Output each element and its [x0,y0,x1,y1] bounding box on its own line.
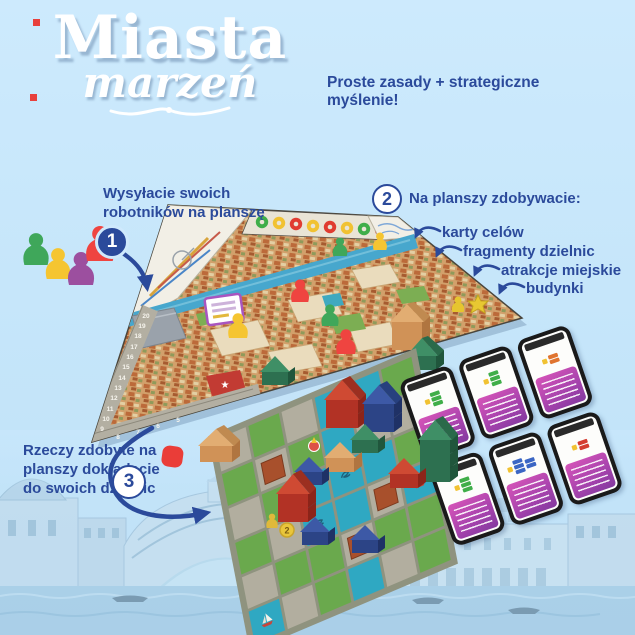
arrow-bullet-karty [416,228,440,236]
step1-label: Wysyłacie swoich robotników na planszę [103,184,293,222]
step3-badge: 3 [112,465,146,499]
arrow-bullet-budynki [500,284,524,292]
arrow-step1 [124,254,147,287]
bullet-atrakcje-miejskie: atrakcje miejskie [501,262,621,279]
step2-row: 2 Na planszy zdobywacie: [372,184,581,214]
red-confetti-square [30,94,37,101]
arrow-bullet-fragmenty [437,247,461,255]
step2-label: Na planszy zdobywacie: [409,189,581,208]
bullet-budynki: budynki [526,280,584,297]
step1-badge: 1 [95,225,129,259]
game-title: Miasta marzeń [30,8,310,118]
bullet-fragmenty-dzielnic: fragmenty dzielnic [463,243,595,260]
bullet-karty-celow: karty celów [442,224,524,241]
promo-image: ★ [0,0,635,635]
arrow-bullet-atrakcje [475,266,499,274]
tagline: Proste zasady + strategiczne myślenie! [327,74,607,110]
step2-badge: 2 [372,184,402,214]
red-confetti-square [33,19,40,26]
